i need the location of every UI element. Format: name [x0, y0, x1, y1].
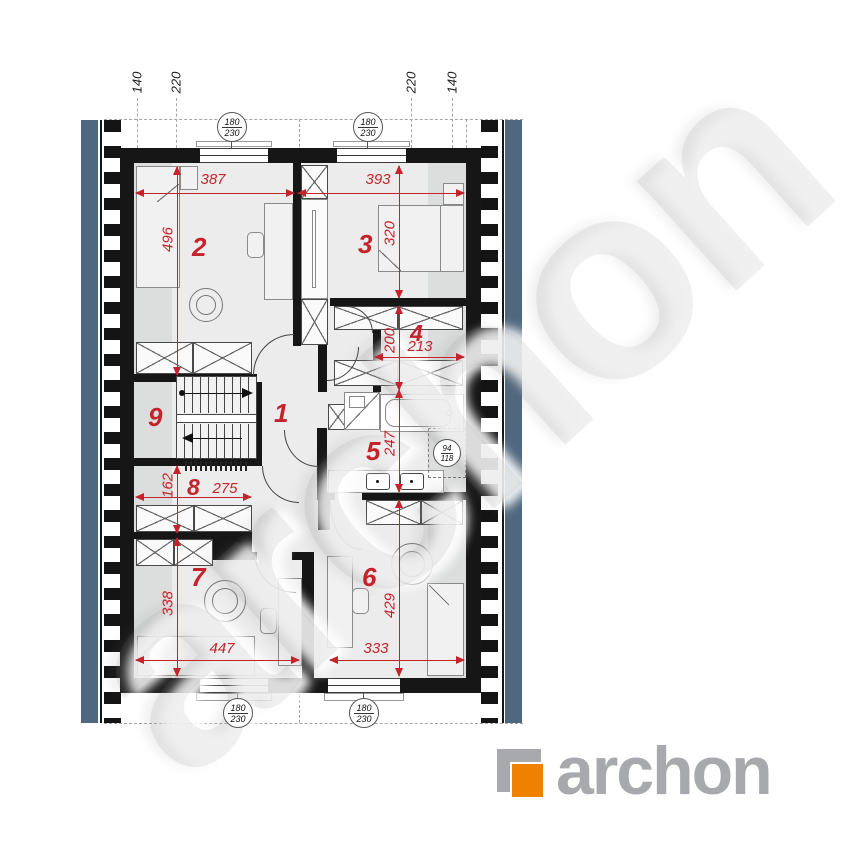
- sink-drain: [376, 480, 379, 483]
- top-tick-140-left: 140: [130, 63, 145, 103]
- dim-line-247: [399, 390, 400, 492]
- marker-numerator: 180: [358, 117, 377, 128]
- wardrobe-room8: [194, 505, 252, 532]
- room-label-6: 6: [362, 564, 376, 590]
- window-bottom-right: [328, 678, 400, 693]
- window-marker-bottom-left: 180 230: [223, 698, 253, 728]
- top-tick-220-right: 220: [404, 63, 419, 103]
- chair-room2: [247, 232, 264, 258]
- radiator: [185, 461, 247, 471]
- dim-393: 393: [353, 172, 403, 187]
- wall-room7-room6: [302, 552, 314, 678]
- tick-leader: [176, 98, 177, 148]
- room-label-9: 9: [148, 404, 162, 430]
- wall-bath-south: [327, 492, 335, 500]
- roof-window-marker: 94 118: [433, 439, 461, 467]
- wardrobe-room2: [193, 342, 252, 374]
- marker-denominator: 230: [224, 128, 239, 138]
- dim-line-496: [177, 167, 178, 375]
- wardrobe-room4: [398, 360, 463, 386]
- marker-numerator: 180: [228, 703, 247, 714]
- wardrobe-room7: [136, 539, 174, 566]
- room-label-3: 3: [358, 231, 372, 257]
- stairs-direction-line: [182, 393, 242, 394]
- room-label-5: 5: [366, 438, 380, 464]
- cabinet-room3-bottom: [301, 299, 328, 345]
- dim-320: 320: [383, 209, 398, 259]
- chair-pouf-room6-inner: [399, 551, 425, 577]
- dim-line-387: [136, 193, 294, 194]
- eaves-rail-right: [502, 120, 504, 723]
- window-marker-top-left: 180 230: [217, 112, 247, 142]
- wall-top: [268, 148, 337, 163]
- marker-denominator: 230: [356, 714, 371, 724]
- archon-logo-text: archon: [556, 737, 771, 805]
- dim-line-338: [177, 538, 178, 676]
- wardrobe-room6: [421, 500, 463, 525]
- roof-outline-bottom: [104, 723, 523, 724]
- window-marker-top-right: 180 230: [353, 112, 383, 142]
- window-marker-bottom-right: 180 230: [349, 698, 379, 728]
- bed-fold: [429, 585, 449, 605]
- dim-162: 162: [161, 461, 176, 511]
- stairs-down-arrow: [182, 433, 193, 443]
- wall-room8-south: [134, 532, 252, 539]
- bed-fold: [139, 638, 159, 658]
- tick-leader: [452, 98, 453, 148]
- room-label-1: 1: [274, 400, 288, 426]
- wall-room7-north: [213, 552, 257, 560]
- desk-room6: [327, 556, 353, 648]
- tick-leader: [137, 98, 138, 148]
- roof-outline-top: [104, 119, 523, 120]
- bathtub-drain: [446, 410, 452, 416]
- window-top-left: [200, 148, 268, 163]
- dim-200: 200: [383, 316, 398, 366]
- sink-drain: [410, 480, 413, 483]
- room-label-4: 4: [410, 320, 423, 346]
- wall-left: [120, 148, 134, 693]
- marker-denominator: 230: [360, 128, 375, 138]
- floor-plan-canvas: archon 140 220 220 140: [0, 0, 853, 853]
- marker-denominator: 230: [230, 714, 245, 724]
- cabinet-shelf: [312, 210, 316, 288]
- window-sill: [196, 141, 272, 147]
- tick-leader: [466, 119, 467, 148]
- dim-line-333: [330, 660, 464, 661]
- chair-pouf-room7-inner: [212, 588, 238, 614]
- dim-247: 247: [383, 419, 398, 469]
- dim-496: 496: [161, 215, 176, 265]
- marker-numerator: 94: [441, 444, 454, 454]
- stairs-start-dot: [179, 390, 185, 396]
- wardrobe-room6: [366, 500, 421, 525]
- wardrobe-room2: [136, 342, 193, 374]
- window-sill: [333, 141, 410, 147]
- wall-right: [466, 148, 481, 693]
- wall-bottom: [268, 678, 328, 693]
- roof-band-right: [505, 120, 522, 723]
- tick-leader: [411, 98, 412, 148]
- wall-bottom: [120, 678, 200, 693]
- dim-275: 275: [200, 481, 250, 496]
- room-label-8: 8: [187, 474, 200, 500]
- wall-top: [406, 148, 481, 163]
- stairs-up-arrow: [242, 388, 253, 398]
- dim-line-447: [136, 660, 299, 661]
- dim-447: 447: [197, 641, 247, 656]
- wall-bath-south: [362, 492, 466, 500]
- top-tick-220-left: 220: [169, 63, 184, 103]
- shower-tray: [349, 396, 365, 408]
- wall-top: [120, 148, 200, 163]
- bed-pillow-line: [440, 206, 441, 271]
- eaves-left: [104, 120, 121, 723]
- stairs-direction-line: [188, 438, 242, 439]
- desk-room2: [264, 203, 293, 300]
- dim-333: 333: [351, 641, 401, 656]
- room-label-7: 7: [191, 564, 205, 590]
- wardrobe-room4: [398, 306, 463, 330]
- wall-bath-west: [317, 428, 327, 500]
- wall-bottom: [400, 678, 481, 693]
- room-label-2: 2: [192, 234, 206, 260]
- dim-338: 338: [161, 579, 176, 629]
- chair-room7: [260, 608, 277, 634]
- eaves-right: [481, 120, 498, 723]
- wall-room6-west: [318, 500, 330, 530]
- archon-logo-orange-square: [510, 762, 543, 797]
- dim-line-393: [298, 193, 464, 194]
- dim-429: 429: [383, 581, 398, 631]
- marker-denominator: 118: [441, 454, 454, 463]
- top-tick-140-right: 140: [445, 63, 460, 103]
- eaves-rail-left: [100, 120, 102, 723]
- roof-band-left: [81, 120, 98, 723]
- stairs-handrail: [176, 414, 257, 423]
- window-top-right: [337, 148, 406, 163]
- marker-numerator: 180: [222, 117, 241, 128]
- dim-387: 387: [188, 172, 238, 187]
- dim-line-162: [177, 466, 178, 533]
- pouf-room2-inner: [196, 295, 216, 315]
- marker-numerator: 180: [354, 703, 373, 714]
- window-bottom-left: [200, 678, 268, 693]
